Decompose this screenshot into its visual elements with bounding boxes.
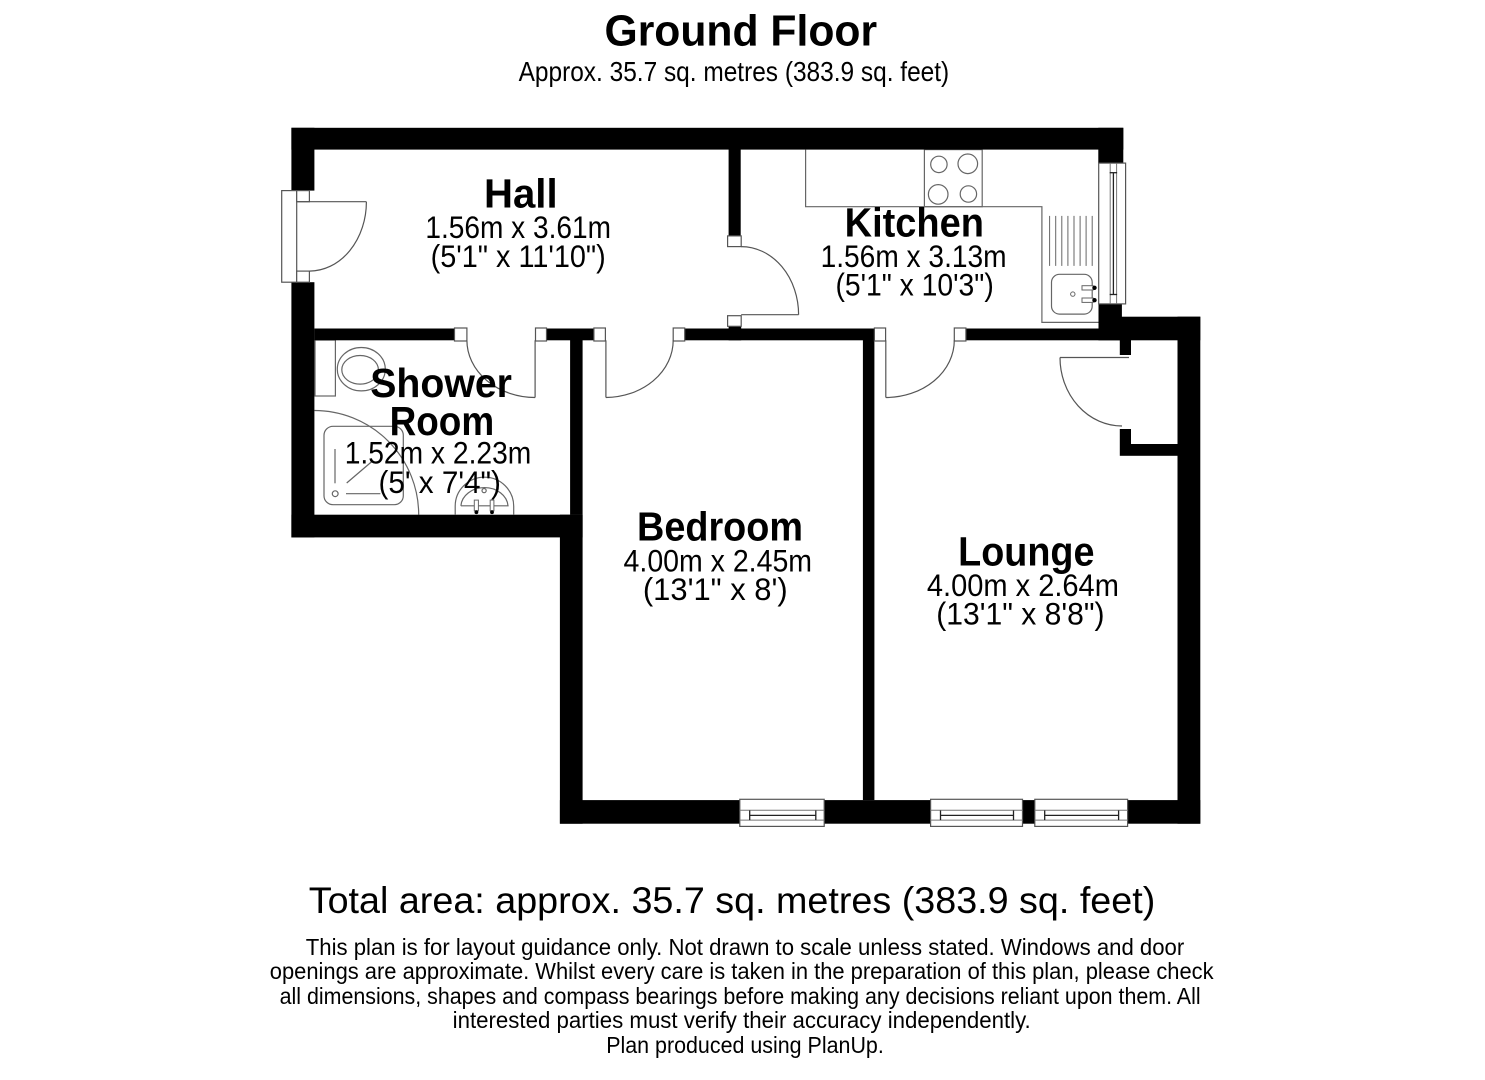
svg-text:Approx. 35.7 sq. metres (383.9: Approx. 35.7 sq. metres (383.9 sq. feet) [519, 56, 950, 87]
svg-text:(13'1" x 8'8"): (13'1" x 8'8") [936, 595, 1104, 631]
svg-text:all dimensions, shapes and com: all dimensions, shapes and compass beari… [280, 983, 1201, 1009]
svg-text:(5' x 7'4"): (5' x 7'4") [378, 464, 501, 500]
svg-text:interested parties must verify: interested parties must verify their acc… [453, 1007, 1031, 1033]
svg-text:(5'1" x 11'10"): (5'1" x 11'10") [431, 238, 606, 274]
svg-text:(13'1" x 8'): (13'1" x 8') [643, 571, 788, 607]
svg-text:Plan produced using PlanUp.: Plan produced using PlanUp. [606, 1032, 884, 1058]
svg-text:This plan is for layout guidan: This plan is for layout guidance only. N… [306, 934, 1185, 960]
svg-text:(5'1" x 10'3"): (5'1" x 10'3") [835, 266, 993, 302]
svg-text:Total area: approx. 35.7 sq. m: Total area: approx. 35.7 sq. metres (383… [309, 879, 1156, 921]
svg-text:Ground Floor: Ground Floor [605, 7, 878, 56]
svg-text:openings are approximate. Whil: openings are approximate. Whilst every c… [270, 958, 1214, 984]
